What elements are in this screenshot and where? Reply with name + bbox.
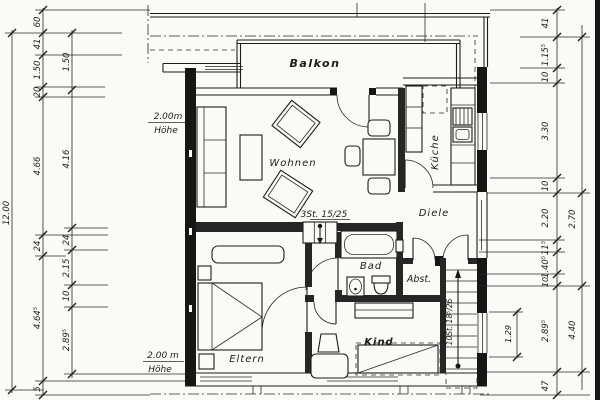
dim-label: 1.15⁵ bbox=[541, 43, 551, 66]
desk bbox=[311, 354, 348, 378]
dim-label: 2.89⁵ bbox=[62, 328, 72, 351]
room-label-abst: Abst. bbox=[406, 274, 431, 285]
shelf bbox=[355, 303, 413, 318]
dim-label: 2.89⁵ bbox=[541, 319, 551, 342]
small-stair bbox=[303, 222, 337, 244]
dim-label: 2.20 bbox=[541, 209, 551, 228]
dim-label: 20 bbox=[33, 87, 43, 98]
toilet bbox=[372, 276, 390, 294]
dim-label: 24 bbox=[33, 241, 43, 252]
wall-left bbox=[185, 68, 196, 386]
height-note-bottom-word: Höhe bbox=[148, 365, 172, 375]
room-label-kueche: Küche bbox=[430, 134, 441, 170]
door-abst bbox=[413, 238, 435, 260]
balcony-railing bbox=[237, 40, 460, 88]
door-stairs bbox=[443, 235, 468, 260]
dim-label: 4.16 bbox=[62, 149, 72, 169]
small-stair-note: 3St. 15/25 bbox=[301, 210, 348, 220]
dim-label: 1.50 bbox=[33, 61, 43, 80]
dim-label: 10 bbox=[62, 291, 72, 302]
dim-label: 24 bbox=[62, 235, 72, 246]
dim-label: 10 bbox=[541, 181, 551, 192]
dining-set bbox=[345, 120, 395, 194]
heater bbox=[396, 240, 403, 252]
window-eltern bbox=[200, 377, 252, 381]
room-label-wohnen: Wohnen bbox=[269, 158, 316, 169]
wall-bad-north bbox=[337, 223, 396, 231]
dim-label: 3.30 bbox=[541, 122, 551, 141]
height-note-top-word: Höhe bbox=[154, 126, 178, 136]
wall-kitchen-west bbox=[398, 88, 405, 192]
scan-edge-artifact bbox=[595, 0, 600, 400]
washbasin bbox=[347, 277, 364, 296]
dim-label: 10 bbox=[541, 72, 551, 83]
dim-label: 4.40 bbox=[568, 321, 578, 340]
double-bed bbox=[198, 283, 262, 350]
dim-label: 60 bbox=[33, 17, 43, 28]
room-label-balkon: Balkon bbox=[290, 57, 341, 70]
room-label-diele: Diele bbox=[419, 208, 450, 219]
room-label-bad: Bad bbox=[360, 261, 382, 272]
dim-total-height: 12.00 bbox=[2, 201, 12, 225]
foundation-stubs bbox=[253, 386, 470, 394]
dim-label: 1.50 bbox=[62, 53, 72, 72]
dim-label: 1.40⁵ bbox=[541, 255, 551, 278]
dim-label: 11⁵ bbox=[541, 240, 551, 255]
window-stairs bbox=[478, 313, 487, 353]
door-kitchen bbox=[405, 160, 433, 188]
wall-wohnen-south bbox=[196, 222, 303, 232]
eltern-furniture bbox=[198, 246, 284, 369]
dim-label: 4.66 bbox=[33, 156, 43, 176]
dining-chair bbox=[345, 146, 360, 166]
main-stair-note: 10St. 18⁵/26 bbox=[445, 298, 454, 345]
dim-label: 2.70 bbox=[568, 210, 578, 229]
dim-label: 5 bbox=[33, 386, 43, 391]
door-balcony bbox=[337, 95, 369, 127]
dim-label: 41 bbox=[33, 39, 43, 50]
room-label-eltern: Eltern bbox=[229, 354, 265, 365]
dim-label: 47 bbox=[541, 380, 551, 391]
stove bbox=[453, 108, 472, 125]
dim-label: 2.15 bbox=[62, 259, 72, 278]
dim-label: 4.64⁵ bbox=[33, 306, 43, 329]
dining-chair bbox=[368, 178, 390, 194]
armchair bbox=[272, 100, 320, 147]
nightstand bbox=[198, 266, 211, 280]
height-note-bottom-value: 2.00 m bbox=[147, 351, 179, 361]
floor-plan-drawing: Balkon Wohnen Küche Diele Bad Abst. Kind… bbox=[0, 0, 600, 400]
kitchen-counter-left bbox=[406, 86, 422, 152]
sofa bbox=[197, 107, 226, 207]
kitchen-sink bbox=[453, 127, 472, 142]
kitchen-cupboard bbox=[423, 86, 447, 113]
dining-table bbox=[363, 139, 395, 175]
door-kind bbox=[314, 302, 336, 324]
dim-label: 41 bbox=[541, 18, 551, 29]
dim-stair-width: 1.29 bbox=[504, 325, 513, 343]
coffee-table bbox=[240, 135, 262, 180]
dining-chair bbox=[368, 120, 390, 136]
nightstand bbox=[199, 354, 214, 369]
floor-plan-page: Balkon Wohnen Küche Diele Bad Abst. Kind… bbox=[0, 0, 600, 400]
height-note-top-value: 2.00m bbox=[154, 112, 183, 122]
room-label-kind: Kind bbox=[364, 337, 393, 348]
wall-right bbox=[477, 67, 487, 386]
window-kitchen bbox=[478, 113, 487, 150]
door-eltern bbox=[262, 287, 307, 332]
bathtub bbox=[341, 231, 397, 258]
desk-chair bbox=[318, 334, 339, 352]
wardrobe bbox=[212, 246, 284, 263]
dim-label: 10 bbox=[541, 277, 550, 287]
